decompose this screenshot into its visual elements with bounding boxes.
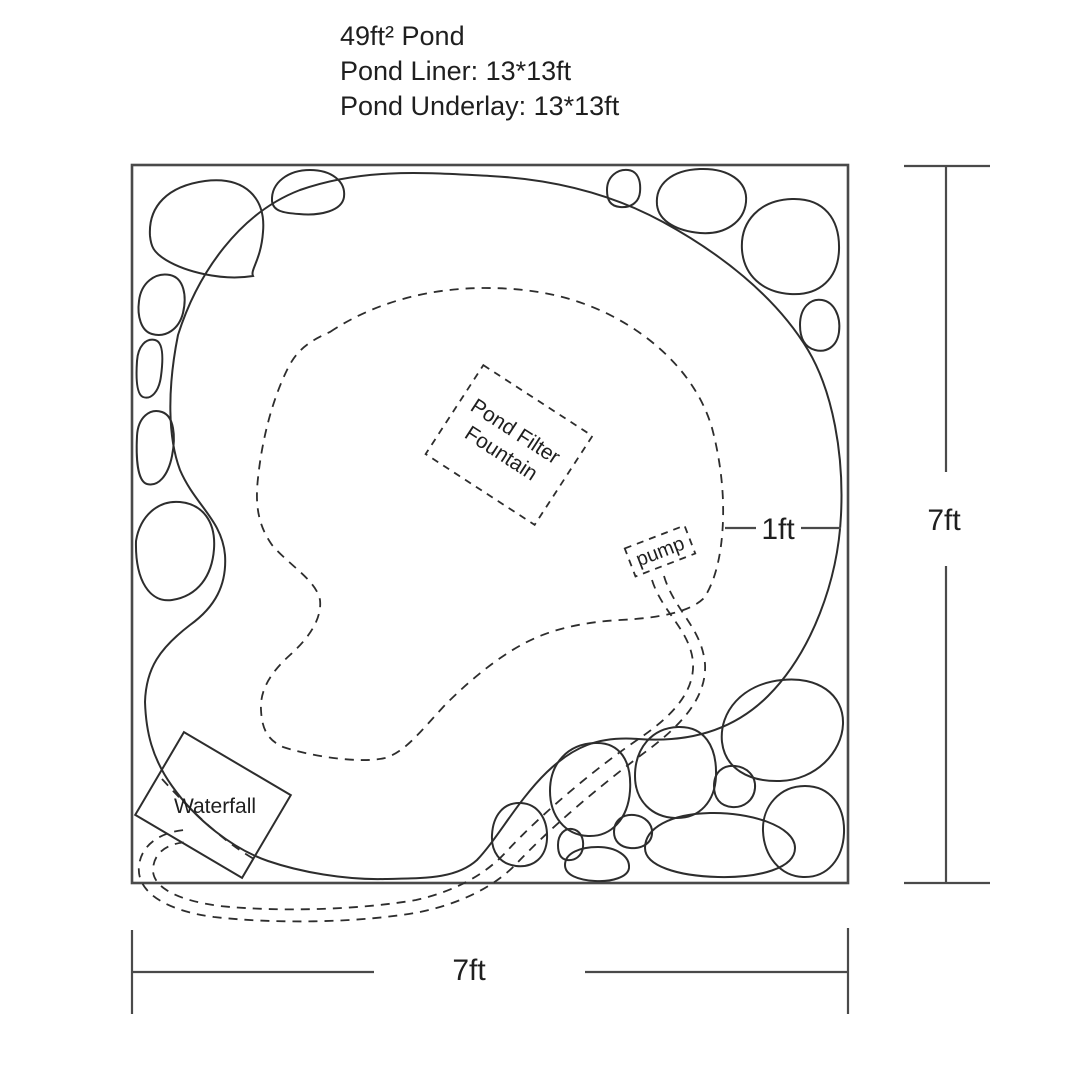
height-dimension: 7ft xyxy=(904,166,990,883)
edge-rocks xyxy=(136,169,844,881)
height-dim-value: 7ft xyxy=(927,504,961,537)
pump-label: pump xyxy=(633,533,688,571)
pump-hose-line xyxy=(153,580,693,909)
header-notes: 49ft² Pond Pond Liner: 13*13ft Pond Unde… xyxy=(340,21,620,121)
rock xyxy=(272,170,344,214)
rock xyxy=(657,169,746,233)
rock xyxy=(722,679,843,781)
rock xyxy=(136,502,214,600)
width-dimension: 7ft xyxy=(132,928,848,1014)
rock xyxy=(742,199,839,294)
pond-plan-diagram: 49ft² Pond Pond Liner: 13*13ft Pond Unde… xyxy=(0,0,1080,1080)
diagram-canvas: 49ft² Pond Pond Liner: 13*13ft Pond Unde… xyxy=(0,0,1080,1080)
rock xyxy=(139,275,185,335)
rock xyxy=(137,411,174,484)
waterfall-box: Waterfall xyxy=(135,732,291,878)
shelf-width-dimension: 1ft xyxy=(725,513,841,546)
rock xyxy=(714,766,755,807)
pond-filter-fountain-box: Pond Filter Fountain xyxy=(426,365,593,525)
pond-liner-note: Pond Liner: 13*13ft xyxy=(340,56,572,86)
pond-underlay-note: Pond Underlay: 13*13ft xyxy=(340,91,620,121)
shelf-dashed-line xyxy=(257,288,723,760)
rock xyxy=(607,170,640,207)
width-dim-value: 7ft xyxy=(452,954,486,987)
rock xyxy=(550,743,630,836)
rock xyxy=(137,340,163,398)
pump-hose xyxy=(139,576,705,921)
rock xyxy=(800,300,839,351)
rock xyxy=(645,813,795,877)
waterfall-label: Waterfall xyxy=(174,795,256,818)
rock xyxy=(635,727,716,818)
rock xyxy=(150,180,263,277)
rock xyxy=(565,847,629,881)
rock xyxy=(558,829,583,860)
pump-hose-line xyxy=(139,576,705,921)
pond-outline xyxy=(145,173,841,879)
pond-area-title: 49ft² Pond xyxy=(340,21,465,51)
rock xyxy=(763,786,844,877)
pump-box: pump xyxy=(625,526,696,577)
shelf-width-value: 1ft xyxy=(761,513,795,546)
